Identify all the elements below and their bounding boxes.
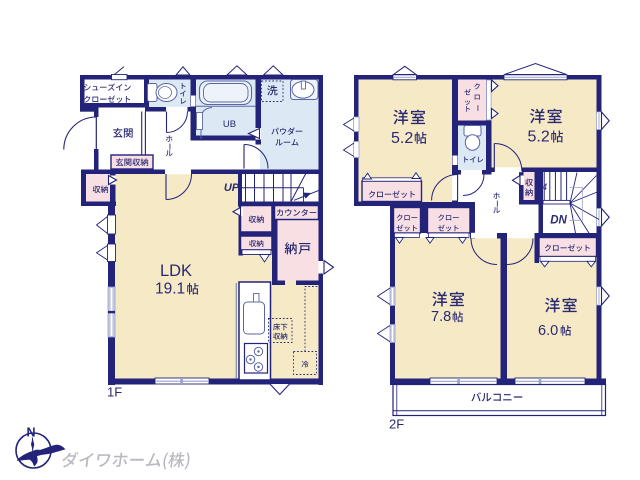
svg-text:7.8: 7.8 (431, 309, 451, 325)
svg-text:UP: UP (224, 182, 240, 194)
svg-text:LDK: LDK (160, 262, 192, 280)
svg-text:1F: 1F (107, 385, 122, 400)
svg-text:6.0: 6.0 (538, 323, 558, 339)
svg-text:5.2: 5.2 (528, 129, 550, 146)
svg-text:19.1: 19.1 (155, 281, 185, 298)
svg-text:4: 4 (542, 182, 547, 193)
svg-text:2F: 2F (389, 416, 404, 431)
svg-text:UB: UB (223, 119, 236, 130)
svg-text:5.2: 5.2 (391, 130, 413, 147)
svg-text:N: N (26, 426, 35, 440)
svg-text:DN: DN (550, 215, 567, 227)
